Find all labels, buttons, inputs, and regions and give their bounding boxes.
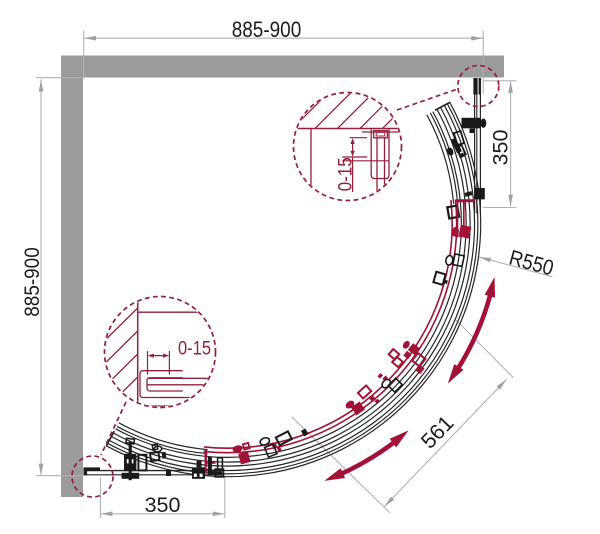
svg-text:350: 350 [489, 130, 513, 166]
svg-text:350: 350 [145, 493, 181, 517]
svg-text:885-900: 885-900 [232, 17, 302, 42]
svg-text:885-900: 885-900 [20, 247, 44, 317]
svg-text:0-15: 0-15 [178, 338, 211, 360]
svg-text:0-15: 0-15 [335, 157, 357, 191]
